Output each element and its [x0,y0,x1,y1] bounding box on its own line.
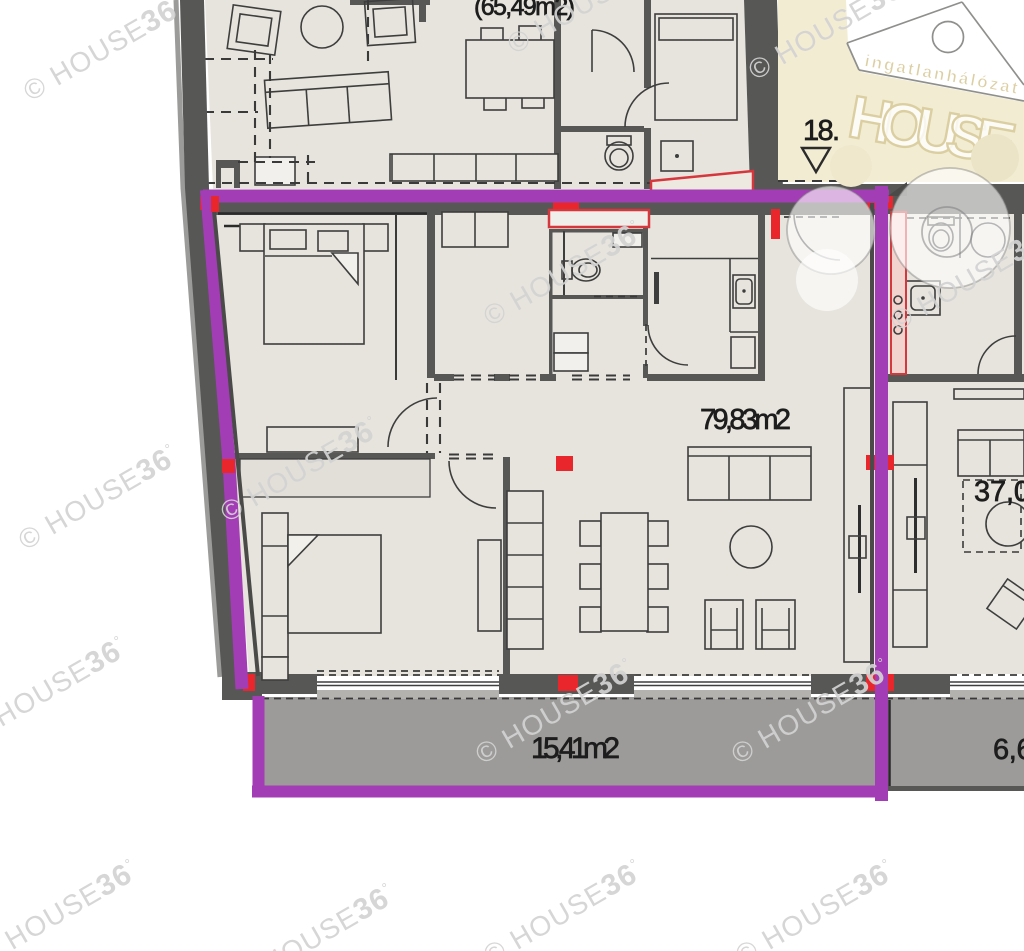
svg-text:15,41m2: 15,41m2 [531,732,620,765]
svg-text:37,08m2: 37,08m2 [974,476,1024,508]
svg-text:18.: 18. [803,115,840,147]
svg-text:79,83m2: 79,83m2 [700,404,791,436]
svg-text:6,63m2: 6,63m2 [993,734,1024,766]
